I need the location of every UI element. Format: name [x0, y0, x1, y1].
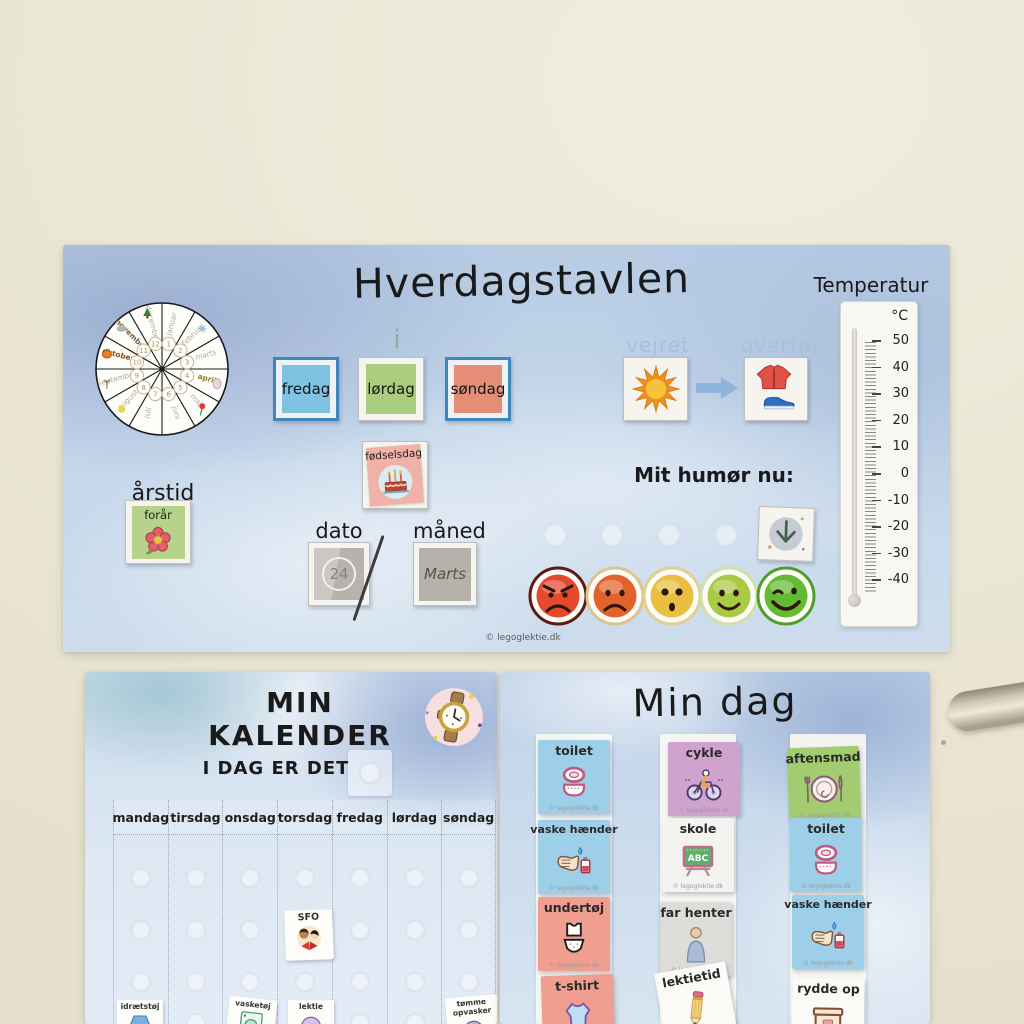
thermometer-tick-label: -30 — [883, 546, 909, 561]
day-card-label: rydde op — [797, 980, 860, 996]
thermometer-bulb — [848, 594, 861, 607]
day-card-label: far henter — [660, 905, 731, 920]
min-kalender-board: MIN KALENDER I DAG ER DET mandagtirsdago… — [85, 672, 497, 1024]
season-card-frame: forår — [125, 500, 191, 564]
birthday-cake-icon — [373, 460, 418, 505]
thermometer-tube — [852, 328, 857, 600]
velcro-dot — [350, 868, 370, 888]
season-card: forår — [132, 506, 185, 559]
my-day-title: Min dag — [620, 678, 811, 725]
thermometer-tick-label: 10 — [883, 439, 909, 454]
temperature-title: Temperatur — [811, 273, 931, 297]
thermometer-tick-label: 20 — [883, 413, 909, 428]
wash-hands-icon — [808, 911, 848, 961]
sun-icon — [631, 364, 681, 414]
svg-text:7: 7 — [153, 391, 157, 399]
calendar-subtitle: I DAG ER DET — [191, 758, 361, 779]
card-watermark: © legoglektie.dk — [801, 884, 851, 890]
month-card-frame: Marts — [413, 542, 477, 606]
calendar-card-idr-tst-j: idrætstøj — [117, 1000, 163, 1024]
velcro-dot — [405, 868, 425, 888]
tshirt-icon — [557, 992, 599, 1024]
sneaker-icon — [762, 393, 796, 410]
outerwear-card — [744, 357, 808, 421]
season-card-label: forår — [144, 508, 172, 522]
mood-face-angry — [528, 566, 588, 626]
day-card-cykle: cykle© legoglektie.dk — [668, 742, 740, 816]
velcro-dot — [186, 868, 206, 888]
day-card-toilet: toilet© legoglektie.dk — [790, 818, 862, 892]
velcro-dot — [240, 868, 260, 888]
weekday-header-mandag: mandag — [114, 800, 168, 835]
day-card-frame-søndag: søndag — [445, 357, 511, 421]
toilet-icon — [808, 836, 844, 884]
svg-text:9: 9 — [135, 372, 139, 380]
velcro-dot — [459, 972, 479, 992]
weekday-column-lørdag: lørdag — [387, 800, 442, 1024]
month-label: måned — [413, 519, 485, 543]
mood-label: Mit humør nu: — [619, 463, 809, 487]
thermometer-tick-label: 40 — [883, 360, 909, 375]
card-watermark: © legoglektie.dk — [549, 806, 599, 812]
day-card-rydde-op: rydde op© legoglektie.dk — [791, 977, 864, 1024]
thermometer-tick-label: -20 — [883, 519, 909, 534]
weather-card — [623, 357, 688, 421]
card-watermark: © legoglektie.dk — [549, 963, 599, 969]
day-card-frame-lørdag: lørdag — [358, 357, 424, 421]
svg-text:11: 11 — [139, 347, 148, 355]
min-dag-board: Min dag toilet© legoglektie.dkvaske hænd… — [500, 672, 930, 1024]
month-wheel: januar1februar2marts3april4maj5juni6juli… — [90, 297, 234, 441]
thermometer-tick — [872, 340, 881, 342]
month-card: Marts — [419, 548, 471, 601]
weekday-header-torsdag: torsdag — [278, 800, 332, 835]
day-card-label: toilet — [807, 821, 845, 836]
wall-mark — [941, 740, 946, 745]
svg-text:12: 12 — [151, 340, 160, 348]
wash-hands-icon — [554, 836, 594, 886]
board-title: Hverdagstavlen — [353, 254, 684, 308]
weekday-column-mandag: mandag — [113, 800, 168, 1024]
day-card-label: t-shirt — [555, 977, 599, 994]
outerwear-icons — [750, 363, 802, 415]
card-watermark: © legoglektie.dk — [549, 886, 599, 892]
dishwasher-icon — [459, 1016, 489, 1024]
velcro-dot — [295, 972, 315, 992]
velcro-dot — [405, 972, 425, 992]
arrow-right-icon — [696, 373, 738, 403]
flower-icon — [140, 522, 176, 558]
calendar-title: MIN KALENDER — [175, 686, 425, 752]
svg-text:5: 5 — [178, 384, 182, 392]
day-card-toilet: toilet© legoglektie.dk — [538, 740, 610, 814]
down-arrow-icon — [762, 510, 810, 558]
thermometer-tick-label: 30 — [883, 386, 909, 401]
thermometer-unit: °C — [891, 308, 908, 324]
velcro-dot — [186, 972, 206, 992]
day-card-t-shirt: t-shirt© legoglektie.dk — [541, 974, 616, 1024]
svg-text:8: 8 — [141, 384, 145, 392]
weekday-header-tirsdag: tirsdag — [169, 800, 223, 835]
svg-text:6: 6 — [166, 391, 171, 399]
velcro-dot — [186, 920, 206, 940]
copyright-text: © legoglektie.dk — [443, 633, 603, 643]
hverdagstavlen-board: Hverdagstavlen Temperatur januar1februar… — [63, 245, 950, 652]
thermometer-tick — [872, 500, 881, 502]
day-card-lørdag: lørdag — [366, 364, 416, 414]
day-card-lektietid: lektietid© legoglektie.dk — [654, 961, 738, 1024]
svg-text:1: 1 — [166, 340, 170, 348]
weekday-header-søndag: søndag — [442, 800, 495, 835]
velcro-dot — [405, 920, 425, 940]
school-board-icon: ABC — [678, 836, 718, 884]
day-card-label: cykle — [686, 745, 723, 760]
calendar-card-label: tømme opvasker — [445, 997, 497, 1019]
thermometer-tick — [872, 367, 881, 369]
velcro-dot — [405, 1013, 425, 1024]
calendar-card-lektie: lektie — [288, 1000, 334, 1024]
day-card-skole: skoleABC© legoglektie.dk — [662, 818, 734, 892]
velcro-dot — [131, 972, 151, 992]
underwear-icon — [557, 915, 591, 963]
svg-text:2: 2 — [178, 347, 182, 355]
day-card-label: skole — [680, 821, 717, 836]
dinner-plate-icon — [802, 764, 846, 813]
calendar-card-SFO: SFO — [284, 909, 334, 961]
birthday-card: fødselsdag — [366, 444, 424, 506]
svg-text:ABC: ABC — [688, 854, 709, 864]
thermometer-tick — [872, 420, 881, 422]
laundry-icon — [236, 1009, 267, 1024]
toilet-icon — [556, 758, 592, 806]
date-value: 24 — [322, 557, 356, 591]
svg-text:10: 10 — [132, 359, 141, 367]
velcro-dot — [240, 920, 260, 940]
mood-selector-card — [757, 506, 815, 562]
jacket-icon — [754, 364, 794, 391]
velcro-dot — [131, 868, 151, 888]
thermometer-fine-ticks — [865, 342, 876, 594]
wristwatch-icon — [423, 686, 485, 748]
velcro-dot — [600, 523, 624, 547]
day-card-label: undertøj — [544, 900, 604, 915]
weekday-column-onsdag: onsdag — [222, 800, 277, 1024]
card-watermark: © legoglektie.dk — [679, 808, 729, 814]
person-icon — [680, 920, 712, 968]
thermometer-tick-label: -40 — [883, 572, 909, 587]
calendar-card-t-mme-opvasker: tømme opvasker — [445, 994, 497, 1024]
date-label: dato — [303, 519, 375, 543]
thermometer-tick — [872, 553, 881, 555]
svg-text:4: 4 — [185, 372, 190, 380]
weekday-column-tirsdag: tirsdag — [168, 800, 223, 1024]
day-card-vaske-h-nder: vaske hænder© legoglektie.dk — [792, 895, 864, 969]
sports-clothes-icon — [125, 1013, 155, 1024]
date-card: 24 — [314, 548, 364, 600]
thermometer-tick — [872, 473, 881, 475]
calendar-card-label: lektie — [299, 1003, 323, 1012]
day-card-undert-j: undertøj© legoglektie.dk — [538, 897, 610, 971]
calendar-card-vasket-j: vasketøj — [224, 996, 277, 1024]
weekday-header-onsdag: onsdag — [223, 800, 277, 835]
velcro-dot — [459, 920, 479, 940]
bicycle-icon — [683, 760, 725, 808]
day-card-søndag: søndag — [454, 365, 502, 413]
calendar-card-label: idrætstøj — [121, 1003, 160, 1012]
metal-door-handle — [945, 682, 1024, 734]
outerwear-label: overtøj — [741, 333, 815, 357]
velcro-dot — [459, 868, 479, 888]
velcro-dot — [350, 920, 370, 940]
mood-face-happy — [699, 566, 759, 626]
tidy-up-box-icon — [808, 996, 847, 1024]
velcro-dot — [350, 972, 370, 992]
day-card-label: vaske hænder — [784, 898, 871, 911]
thermometer-tick-label: 0 — [883, 466, 909, 481]
thermometer-tick-label: -10 — [883, 493, 909, 508]
calendar-card-label: SFO — [298, 913, 320, 925]
weekday-header-lørdag: lørdag — [388, 800, 442, 835]
thermometer-tick — [872, 393, 881, 395]
weather-label: vejret — [621, 333, 695, 357]
thermometer-tick-label: 50 — [883, 333, 909, 348]
weekday-column-søndag: søndag — [441, 800, 496, 1024]
photo-of-wall-boards: { "wall": {"object_right": "metal-door-h… — [0, 0, 1024, 1024]
velcro-dot — [131, 920, 151, 940]
homework-icon — [297, 1013, 325, 1024]
mood-face-surprised — [642, 566, 702, 626]
velcro-dot — [350, 1013, 370, 1024]
day-card-vaske-h-nder: vaske hænder© legoglektie.dk — [538, 820, 610, 894]
day-card-label: toilet — [555, 743, 593, 758]
pencil-icon — [675, 982, 719, 1024]
weekday-column-fredag: fredag — [332, 800, 387, 1024]
card-watermark: © legoglektie.dk — [803, 961, 853, 967]
day-card-frame-fredag: fredag — [273, 357, 339, 421]
thermometer: °C 50403020100-10-20-30-40 — [840, 301, 918, 627]
today-velcro-square — [348, 750, 392, 796]
svg-text:3: 3 — [185, 359, 189, 367]
mood-face-wink — [756, 566, 816, 626]
mood-face-sad — [585, 566, 645, 626]
day-card-fredag: fredag — [282, 365, 330, 413]
velcro-dot — [657, 523, 681, 547]
thermometer-tick — [872, 579, 881, 581]
weekday-header-fredag: fredag — [333, 800, 387, 835]
velcro-dot — [240, 972, 260, 992]
velcro-dot — [714, 523, 738, 547]
velcro-dot — [295, 868, 315, 888]
birthday-card-frame: fødselsdag — [362, 441, 428, 509]
velcro-dot — [186, 1013, 206, 1024]
day-card-label: aftensmad — [785, 749, 861, 767]
thermometer-tick — [872, 446, 881, 448]
velcro-dot — [543, 523, 567, 547]
children-reading-icon — [293, 923, 326, 954]
day-card-aftensmad: aftensmad© legoglektie.dk — [787, 746, 862, 822]
thermometer-tick — [872, 526, 881, 528]
day-card-label: vaske hænder — [530, 823, 617, 836]
card-watermark: © legoglektie.dk — [673, 884, 723, 890]
